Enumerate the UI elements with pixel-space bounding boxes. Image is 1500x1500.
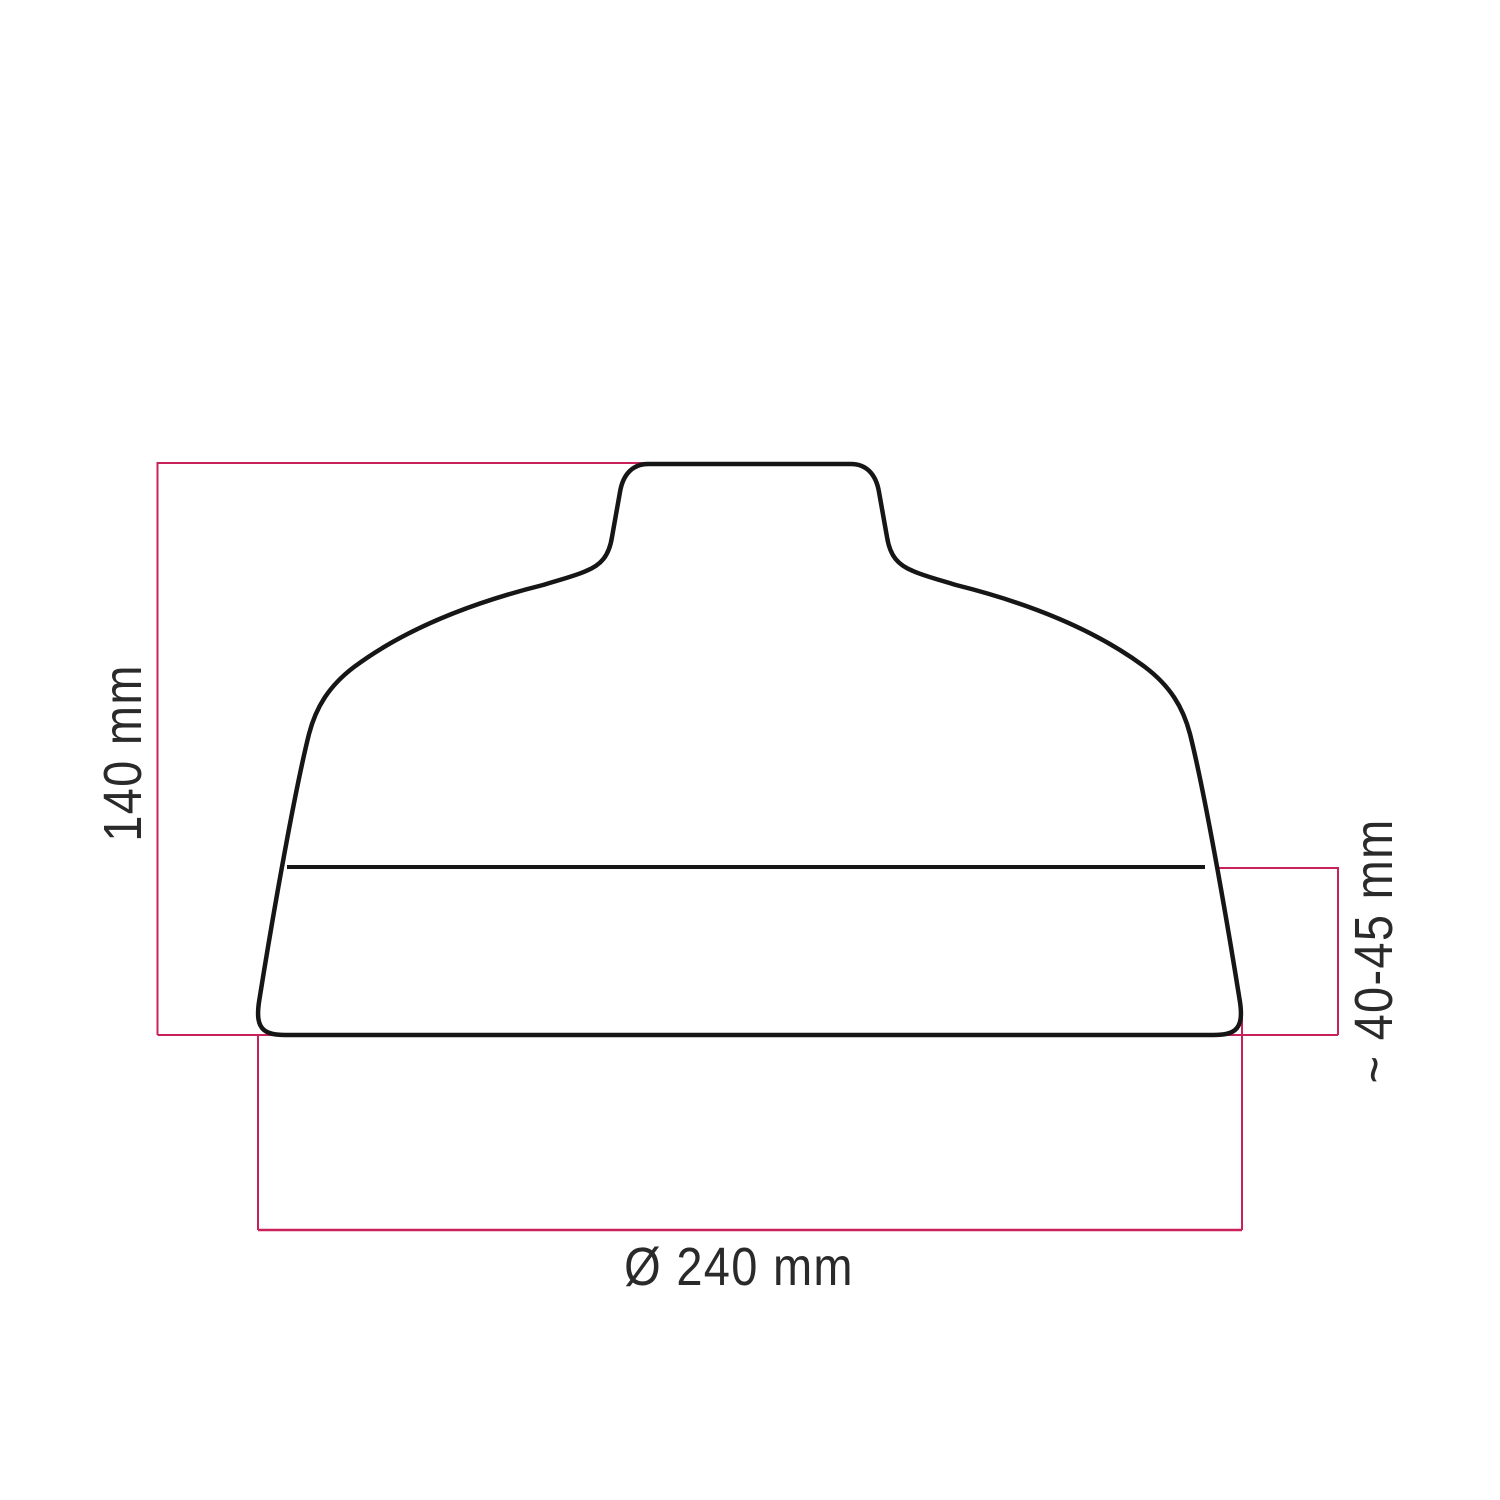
lampshade-outline bbox=[258, 464, 1241, 1035]
depth-dimension-label: ~ 40-45 mm bbox=[1347, 818, 1401, 1083]
lampshade-dimension-diagram: 140 mm ~ 40-45 mm Ø 240 mm bbox=[0, 0, 1500, 1500]
diameter-dimension-label: Ø 240 mm bbox=[624, 1240, 854, 1294]
height-dimension-label: 140 mm bbox=[96, 664, 150, 842]
